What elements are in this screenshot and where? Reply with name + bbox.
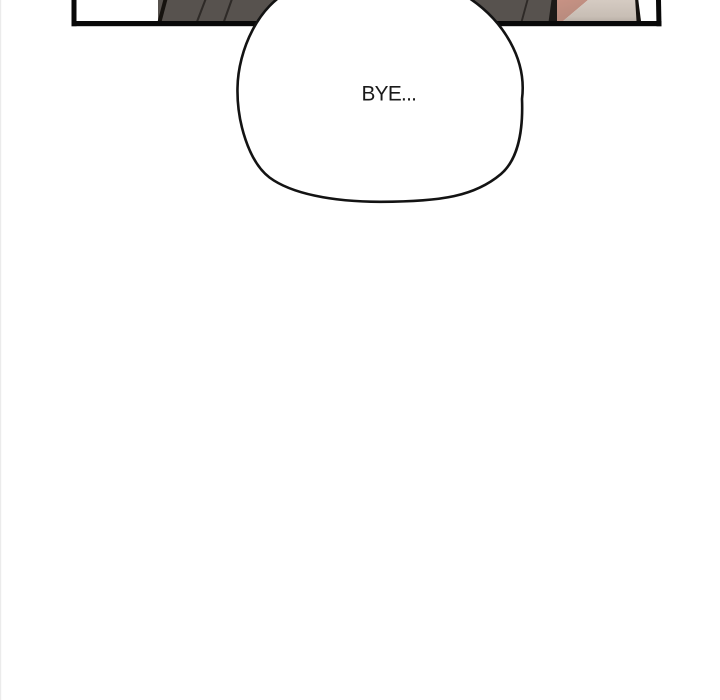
svg-text:BYE...: BYE... (362, 83, 417, 106)
